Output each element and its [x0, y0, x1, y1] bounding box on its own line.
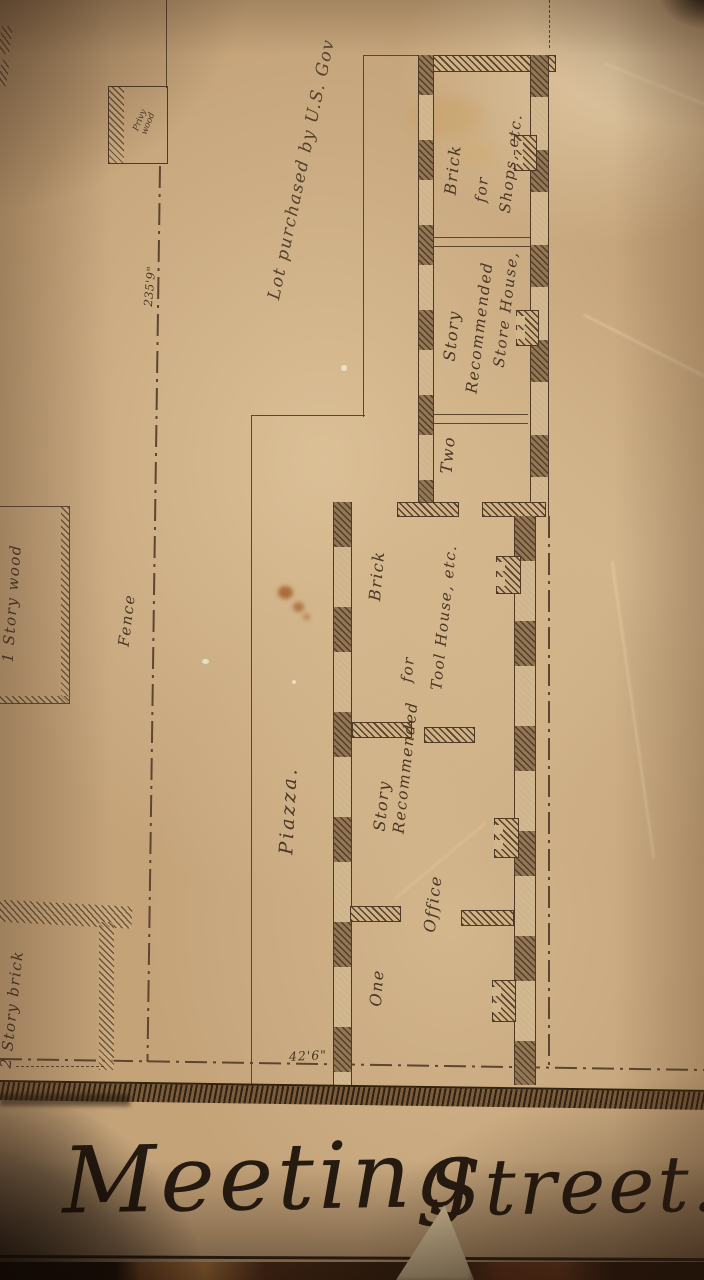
- privy-wall-hatch: [109, 87, 124, 163]
- one-story-partition: [461, 910, 514, 926]
- chimney-notch: [492, 1003, 501, 1012]
- plan-photograph: Privy wood 1 Story wood 2 Story brick Lo…: [0, 0, 704, 1280]
- ruled-border-line: [0, 1255, 704, 1261]
- paper-crease: [583, 314, 704, 388]
- one-story-partition: [350, 906, 401, 922]
- paper-speck: [341, 365, 347, 371]
- brick-building-east-wall: [99, 922, 114, 1070]
- two-story-west-wall: [418, 55, 434, 502]
- rust-stain: [278, 586, 293, 599]
- edge-structure-fragment: [0, 60, 10, 87]
- wood-building-edge-hatch: [61, 507, 69, 703]
- lot-purchase-note: Lot purchased by U.S. Gov: [249, 0, 355, 377]
- chimney-notch: [516, 316, 525, 325]
- paper-crease: [611, 561, 655, 858]
- one-story-word-tool-house: Tool House, etc.: [426, 522, 462, 713]
- chimney: [516, 310, 539, 346]
- two-story-south-wall-east: [482, 502, 546, 517]
- lot-line-west-upper: [363, 55, 364, 417]
- chimney-notch: [492, 987, 501, 996]
- piazza-label: Piazza.: [274, 730, 303, 891]
- one-story-word-one: One: [365, 937, 390, 1038]
- paper-speck: [292, 680, 296, 684]
- chimney: [496, 556, 521, 594]
- photo-bottom-strip: [0, 1262, 704, 1280]
- lot-line-east-dashed-top: [549, 0, 550, 48]
- lot-line-jog: [251, 415, 365, 416]
- one-story-west-wall: [333, 502, 352, 1085]
- privy-label: Privy wood: [125, 91, 165, 154]
- edge-structure-fragment: [0, 25, 13, 54]
- one-story-partition: [424, 727, 475, 743]
- wood-building-edge-hatch: [0, 696, 69, 703]
- rust-stain: [303, 614, 310, 620]
- chimney-notch: [496, 577, 505, 586]
- chimney-notch: [494, 825, 503, 834]
- chimney: [492, 980, 516, 1022]
- lot-line-top: [364, 55, 421, 56]
- fence-label: Fence: [111, 560, 142, 681]
- street-name-street: Street.: [427, 1139, 704, 1234]
- chimney-notch: [496, 562, 505, 571]
- brick-building-bottom-dashed: [16, 1066, 104, 1067]
- chimney-notch: [516, 330, 525, 339]
- paper-speck: [202, 659, 209, 664]
- piazza-west-line: [251, 415, 252, 1085]
- street-edge-dark-left: [0, 1094, 130, 1106]
- fence-line-upper-segment: [166, 0, 167, 88]
- two-story-south-wall-west: [397, 502, 459, 517]
- street-name-meeting: Meeting: [61, 1120, 478, 1234]
- two-story-east-wall: [530, 55, 549, 516]
- chimney-notch: [494, 840, 503, 849]
- one-story-word-brick: Brick: [363, 520, 390, 631]
- rust-stain: [293, 602, 304, 612]
- lot-line-east: [548, 516, 550, 1068]
- chimney: [494, 818, 519, 858]
- privy-outbuilding: Privy wood: [108, 86, 168, 164]
- one-story-east-wall: [514, 516, 536, 1085]
- one-story-word-office: Office: [418, 848, 449, 959]
- two-story-word-story: Story: [437, 275, 467, 396]
- paper-crease: [604, 63, 704, 110]
